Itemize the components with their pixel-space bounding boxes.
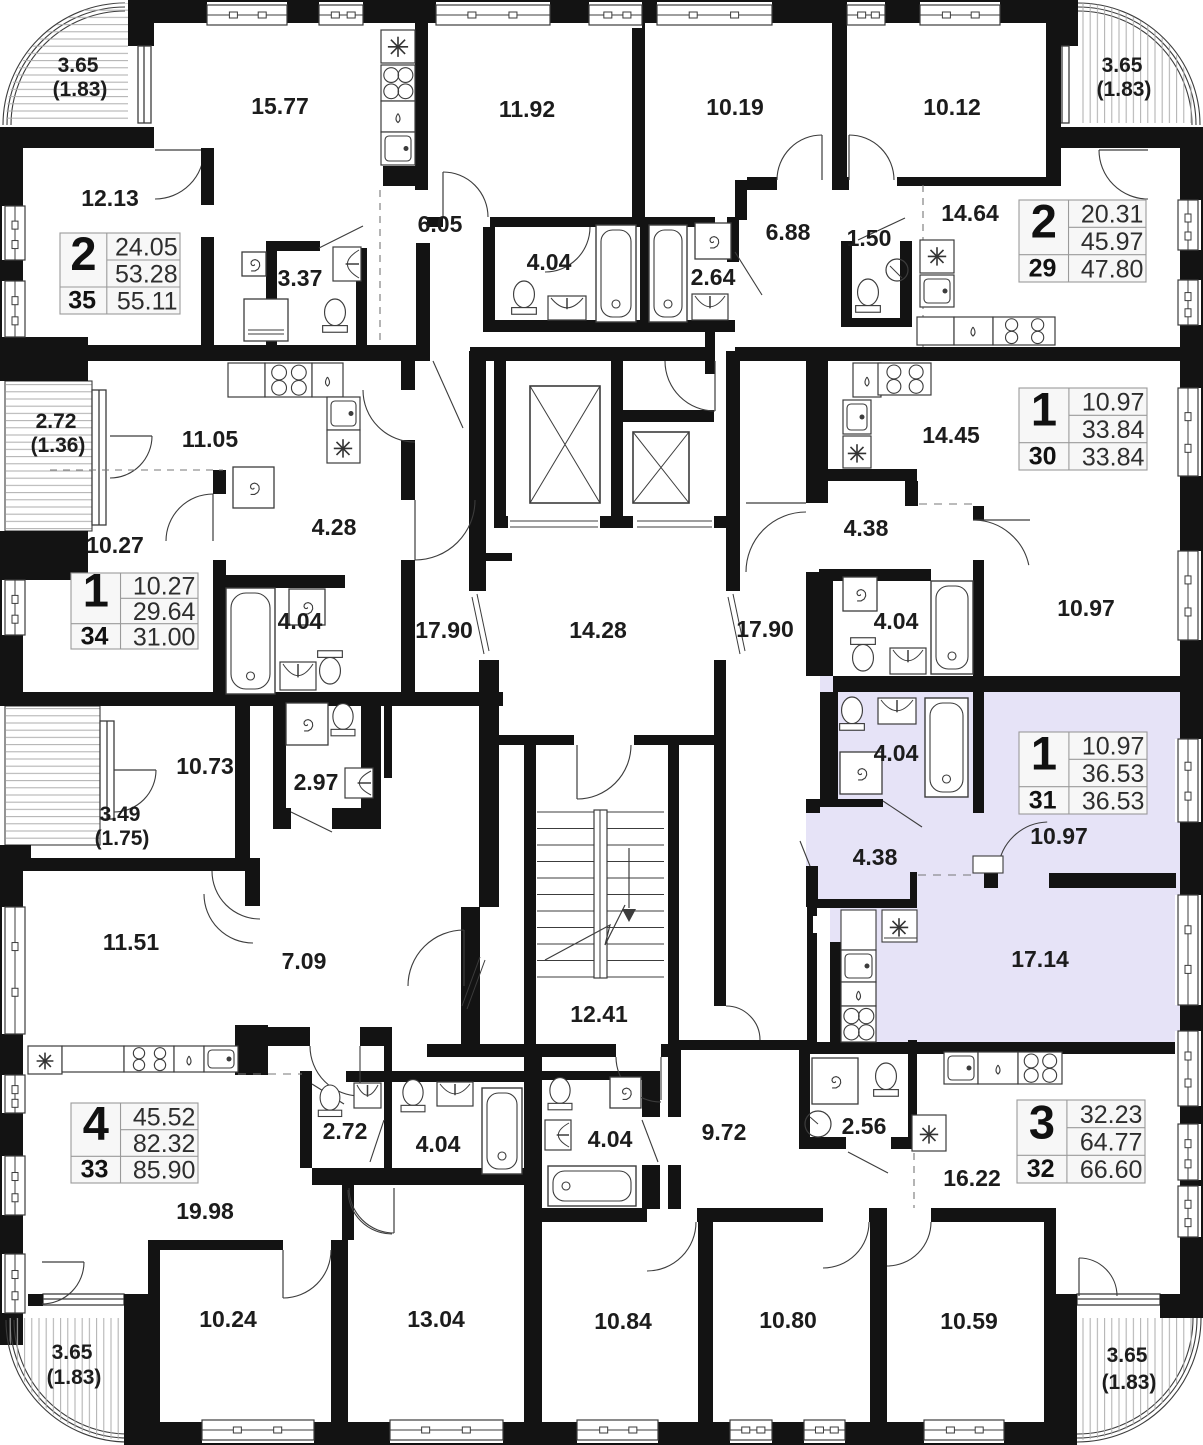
svg-text:10.84: 10.84 bbox=[594, 1308, 652, 1334]
svg-text:12.41: 12.41 bbox=[570, 1001, 628, 1027]
svg-text:(1.83): (1.83) bbox=[1097, 78, 1152, 101]
svg-text:30: 30 bbox=[1029, 442, 1057, 470]
svg-text:31.00: 31.00 bbox=[133, 623, 196, 651]
svg-text:10.19: 10.19 bbox=[706, 94, 764, 120]
svg-text:4.04: 4.04 bbox=[874, 608, 919, 634]
svg-text:17.90: 17.90 bbox=[415, 617, 473, 643]
svg-text:2: 2 bbox=[1031, 195, 1057, 248]
svg-text:4.38: 4.38 bbox=[853, 844, 898, 870]
svg-text:24.05: 24.05 bbox=[115, 234, 178, 262]
svg-text:29.64: 29.64 bbox=[133, 598, 196, 626]
svg-text:14.28: 14.28 bbox=[569, 617, 627, 643]
svg-text:55.11: 55.11 bbox=[117, 288, 178, 316]
svg-text:6.88: 6.88 bbox=[766, 219, 811, 245]
svg-text:3.65: 3.65 bbox=[1102, 54, 1143, 77]
svg-text:12.13: 12.13 bbox=[81, 185, 139, 211]
svg-text:3: 3 bbox=[1029, 1095, 1055, 1148]
svg-text:3.65: 3.65 bbox=[1107, 1344, 1148, 1367]
svg-text:4: 4 bbox=[83, 1096, 109, 1149]
svg-text:4.04: 4.04 bbox=[278, 608, 323, 634]
svg-text:11.05: 11.05 bbox=[182, 426, 238, 452]
svg-text:3.65: 3.65 bbox=[52, 1341, 93, 1364]
svg-text:2.97: 2.97 bbox=[294, 769, 339, 795]
svg-text:(1.83): (1.83) bbox=[1102, 1371, 1157, 1394]
svg-text:2.72: 2.72 bbox=[323, 1118, 368, 1144]
svg-text:10.97: 10.97 bbox=[1082, 733, 1145, 761]
svg-text:14.64: 14.64 bbox=[941, 200, 999, 226]
svg-text:4.38: 4.38 bbox=[844, 515, 889, 541]
svg-text:4.28: 4.28 bbox=[312, 514, 357, 540]
svg-text:1.50: 1.50 bbox=[847, 225, 892, 251]
svg-text:1: 1 bbox=[1031, 727, 1057, 780]
svg-text:(1.75): (1.75) bbox=[95, 827, 150, 850]
svg-text:33: 33 bbox=[81, 1156, 109, 1184]
svg-text:17.14: 17.14 bbox=[1011, 946, 1069, 972]
svg-text:2: 2 bbox=[70, 227, 96, 280]
svg-text:3.65: 3.65 bbox=[58, 54, 99, 77]
svg-text:47.80: 47.80 bbox=[1081, 255, 1144, 283]
svg-text:29: 29 bbox=[1029, 254, 1057, 282]
svg-text:45.52: 45.52 bbox=[133, 1103, 196, 1131]
svg-text:(1.36): (1.36) bbox=[31, 434, 86, 457]
svg-text:17.90: 17.90 bbox=[736, 616, 794, 642]
svg-text:9.72: 9.72 bbox=[702, 1119, 747, 1145]
svg-text:10.27: 10.27 bbox=[133, 573, 196, 601]
svg-text:19.98: 19.98 bbox=[176, 1198, 234, 1224]
svg-text:1: 1 bbox=[1031, 383, 1057, 436]
svg-text:13.04: 13.04 bbox=[407, 1306, 465, 1332]
svg-text:10.59: 10.59 bbox=[940, 1308, 998, 1334]
svg-text:4.04: 4.04 bbox=[874, 740, 919, 766]
svg-text:7.09: 7.09 bbox=[282, 948, 327, 974]
svg-text:20.31: 20.31 bbox=[1081, 201, 1144, 229]
svg-text:53.28: 53.28 bbox=[115, 261, 178, 289]
svg-text:14.45: 14.45 bbox=[922, 422, 980, 448]
svg-text:3.49: 3.49 bbox=[100, 803, 141, 826]
svg-text:16.22: 16.22 bbox=[943, 1165, 1001, 1191]
svg-text:33.84: 33.84 bbox=[1082, 443, 1145, 471]
svg-text:3.37: 3.37 bbox=[278, 265, 323, 291]
svg-text:11.51: 11.51 bbox=[103, 929, 159, 955]
svg-text:45.97: 45.97 bbox=[1081, 228, 1144, 256]
svg-text:4.04: 4.04 bbox=[416, 1131, 461, 1157]
svg-text:10.80: 10.80 bbox=[759, 1307, 817, 1333]
svg-text:1: 1 bbox=[83, 564, 109, 617]
svg-text:10.73: 10.73 bbox=[176, 753, 234, 779]
svg-text:64.77: 64.77 bbox=[1080, 1129, 1143, 1157]
svg-text:2.72: 2.72 bbox=[36, 410, 77, 433]
svg-text:4.04: 4.04 bbox=[588, 1126, 633, 1152]
svg-text:4.04: 4.04 bbox=[527, 249, 572, 275]
svg-text:35: 35 bbox=[68, 287, 96, 315]
svg-text:36.53: 36.53 bbox=[1082, 760, 1145, 788]
svg-text:10.12: 10.12 bbox=[923, 94, 981, 120]
svg-text:32: 32 bbox=[1027, 1155, 1055, 1183]
svg-text:32.23: 32.23 bbox=[1080, 1101, 1143, 1129]
svg-text:2.56: 2.56 bbox=[842, 1113, 887, 1139]
svg-text:33.84: 33.84 bbox=[1082, 416, 1145, 444]
svg-text:10.24: 10.24 bbox=[199, 1306, 257, 1332]
svg-text:10.97: 10.97 bbox=[1057, 595, 1115, 621]
svg-text:10.97: 10.97 bbox=[1030, 823, 1088, 849]
svg-text:85.90: 85.90 bbox=[133, 1157, 196, 1185]
svg-text:(1.83): (1.83) bbox=[47, 1366, 102, 1389]
svg-text:11.92: 11.92 bbox=[499, 96, 555, 122]
svg-text:15.77: 15.77 bbox=[251, 93, 309, 119]
svg-text:36.53: 36.53 bbox=[1082, 787, 1145, 815]
svg-text:2.64: 2.64 bbox=[691, 264, 736, 290]
svg-text:31: 31 bbox=[1029, 786, 1057, 814]
svg-text:10.27: 10.27 bbox=[86, 532, 144, 558]
svg-text:82.32: 82.32 bbox=[133, 1130, 196, 1158]
svg-text:34: 34 bbox=[81, 622, 109, 650]
svg-text:66.60: 66.60 bbox=[1080, 1156, 1143, 1184]
svg-text:(1.83): (1.83) bbox=[53, 78, 108, 101]
svg-text:10.97: 10.97 bbox=[1082, 389, 1145, 417]
svg-text:6.05: 6.05 bbox=[418, 211, 463, 237]
